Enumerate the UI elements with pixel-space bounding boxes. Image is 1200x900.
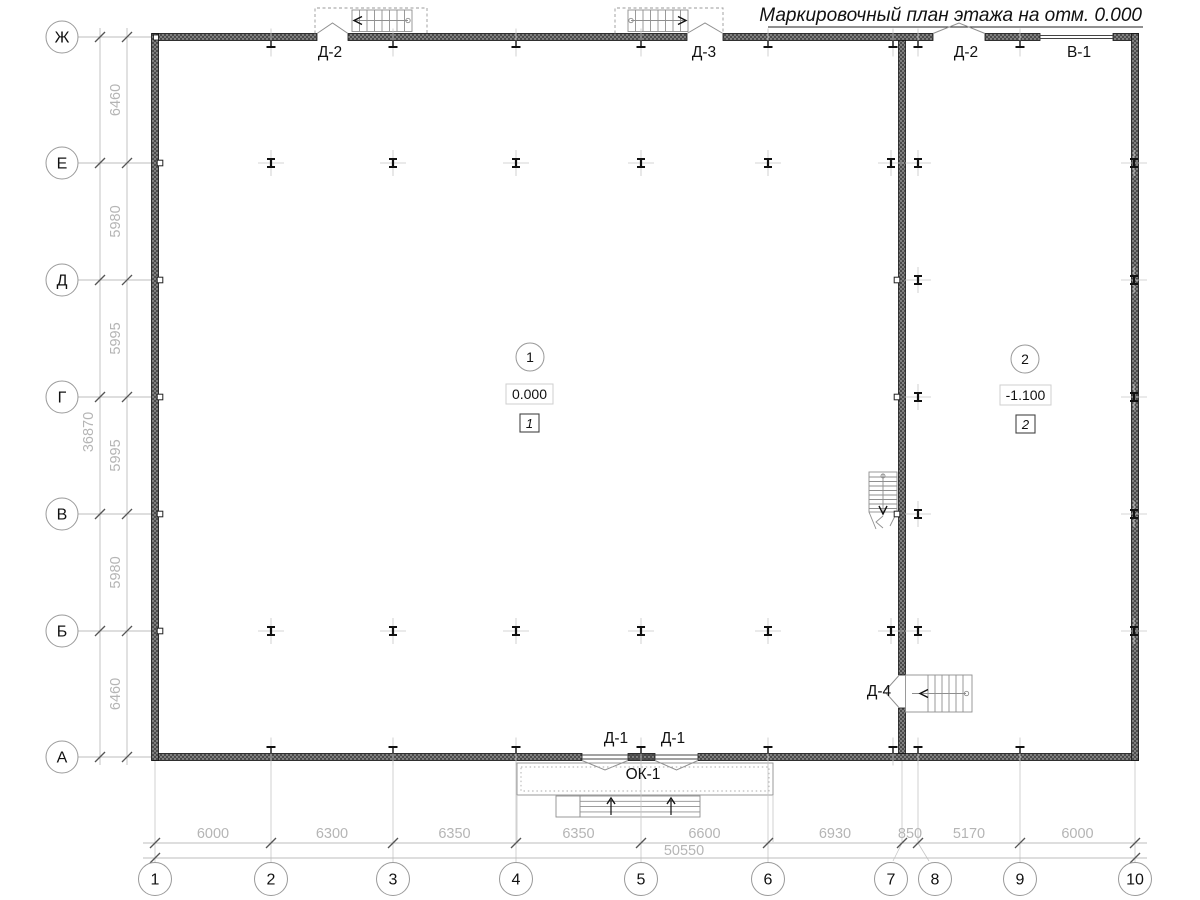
label-door-d1-left: Д-1 <box>604 730 628 747</box>
axis-col-10: 10 <box>1126 872 1144 889</box>
dim-col-8: 6000 <box>1061 826 1093 842</box>
dim-row-4: 5980 <box>108 556 124 588</box>
exterior-walls <box>152 34 1139 761</box>
axis-row-e: Е <box>57 156 68 173</box>
door-swing-d2-left <box>317 23 348 34</box>
axis-col-9: 9 <box>1016 872 1025 889</box>
label-window-v1: В-1 <box>1067 44 1091 61</box>
axis-row-g: Г <box>58 390 67 407</box>
drawing-title: Маркировочный план этажа на отм. 0.000 <box>759 5 1143 27</box>
door-swings <box>317 23 985 770</box>
door-swing-d1-left <box>582 761 628 771</box>
dim-col-2: 6350 <box>438 826 470 842</box>
axis-col-2: 2 <box>267 872 276 889</box>
axis-row-v: В <box>57 507 68 524</box>
room-2-marks: 2 -1.100 2 <box>1000 345 1051 433</box>
door-swing-d3 <box>687 23 723 34</box>
label-door-d2-left: Д-2 <box>318 44 342 61</box>
dim-row-3: 5995 <box>108 439 124 471</box>
room-1-elevation: 0.000 <box>512 386 547 402</box>
dim-row-total: 36870 <box>81 412 97 452</box>
dim-row-2: 5995 <box>108 322 124 354</box>
row-axis-bubbles: Ж Е Д Г В Б А <box>46 21 78 773</box>
stair-top-middle <box>615 8 723 34</box>
dim-col-total: 50550 <box>664 843 704 859</box>
dim-col-5: 6930 <box>819 826 851 842</box>
room-2-number: 2 <box>1021 351 1029 367</box>
room-2-type-mark: 2 <box>1021 417 1030 432</box>
label-door-d4: Д-4 <box>867 683 892 700</box>
room-1-marks: 1 0.000 1 <box>506 343 553 432</box>
dim-row-0: 6460 <box>108 84 124 116</box>
label-window-ok1: ОК-1 <box>626 766 661 783</box>
axis-row-b: Б <box>57 624 68 641</box>
axis-col-4: 4 <box>512 872 521 889</box>
dim-col-7: 5170 <box>953 826 985 842</box>
room-2-elevation: -1.100 <box>1006 387 1046 403</box>
axis-col-6: 6 <box>764 872 773 889</box>
stair-d4 <box>906 675 973 712</box>
dim-col-6: 850 <box>898 826 922 842</box>
axis-col-8: 8 <box>931 872 940 889</box>
room-1-type-mark: 1 <box>526 416 533 431</box>
left-dimensions: 6460 5980 5995 5995 5980 6460 36870 <box>78 28 151 765</box>
axis-col-5: 5 <box>637 872 646 889</box>
axis-col-3: 3 <box>389 872 398 889</box>
axis-col-1: 1 <box>151 872 160 889</box>
dim-col-0: 6000 <box>197 826 229 842</box>
wall-pilasters <box>157 29 1024 766</box>
axis-row-a: А <box>57 750 68 767</box>
dim-row-5: 6460 <box>108 678 124 710</box>
window-v1 <box>1040 36 1113 39</box>
dim-col-1: 6300 <box>316 826 348 842</box>
dim-row-1: 5980 <box>108 205 124 237</box>
page-title: Маркировочный план этажа на отм. 0.000 <box>759 5 1142 26</box>
stair-interior <box>869 472 897 529</box>
column-axis-bubbles: 1 2 3 4 5 6 7 8 9 10 <box>139 863 1152 896</box>
floor-plan-canvas: Маркировочный план этажа на отм. 0.000 <box>0 0 1200 900</box>
label-door-d1-right: Д-1 <box>661 730 685 747</box>
opening-labels: Д-2 Д-3 Д-2 В-1 Д-1 Д-1 ОК-1 Д-4 <box>318 44 1091 783</box>
label-door-d3: Д-3 <box>692 44 716 61</box>
label-door-d2-right: Д-2 <box>954 44 978 61</box>
door-swing-d1-right <box>655 761 698 771</box>
dim-col-4: 6600 <box>688 826 720 842</box>
dim-col-3: 6350 <box>562 826 594 842</box>
stair-top-left <box>315 8 427 34</box>
room-1-number: 1 <box>526 349 534 365</box>
axis-row-zh: Ж <box>55 30 70 47</box>
corner-notch <box>154 35 159 40</box>
axis-col-7: 7 <box>887 872 896 889</box>
axis-row-d: Д <box>57 273 68 290</box>
